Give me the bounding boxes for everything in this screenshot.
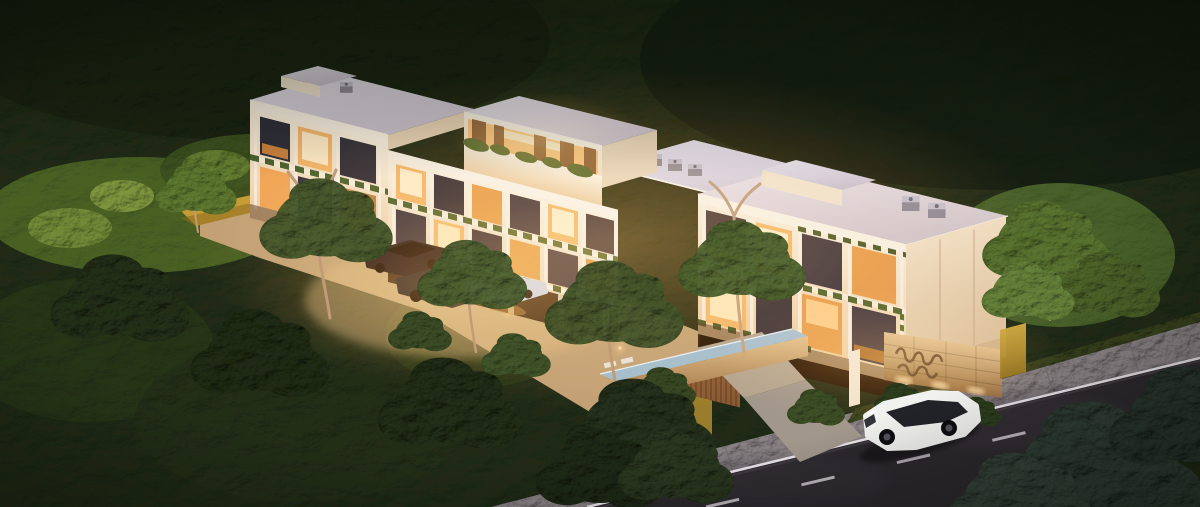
vignette <box>0 0 1200 507</box>
scene-render <box>0 0 1200 507</box>
render-stage <box>0 0 1200 507</box>
